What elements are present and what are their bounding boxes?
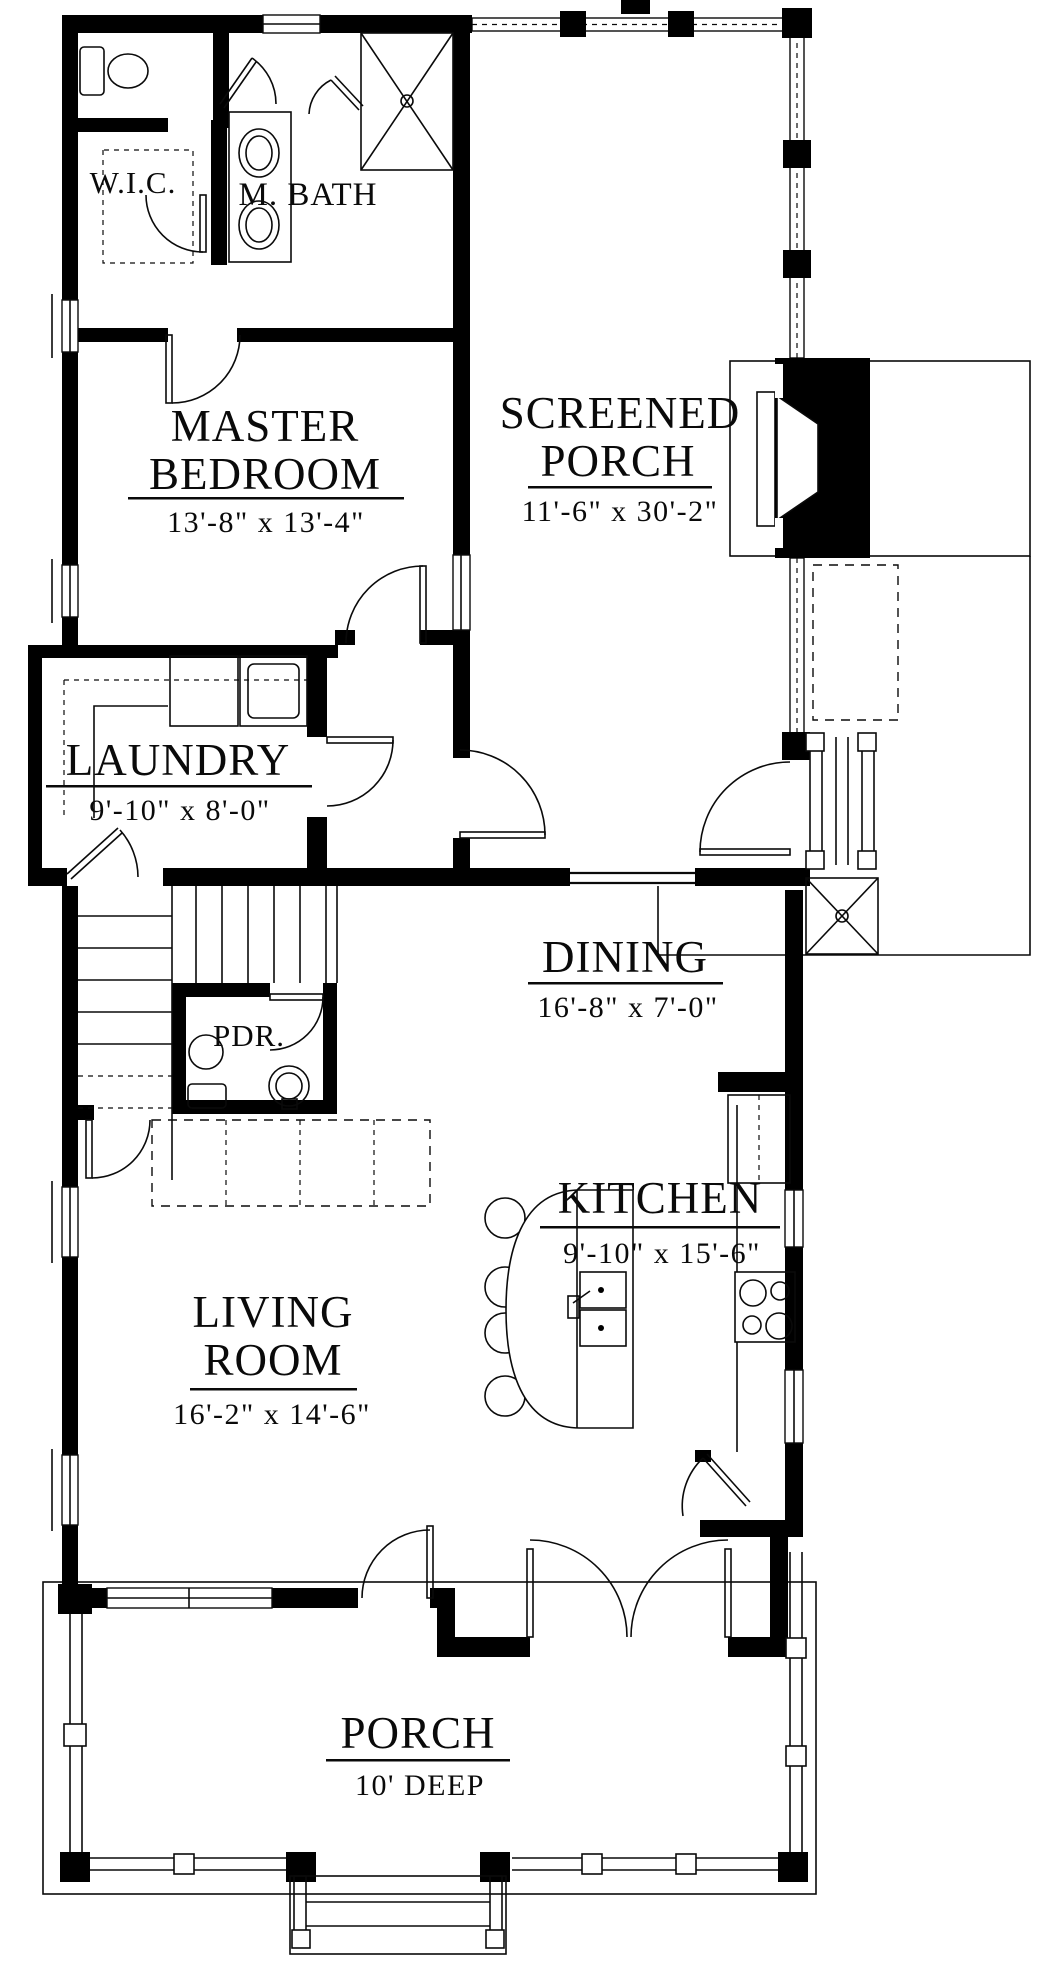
- screen-post: [783, 250, 811, 278]
- shower-fixture: [361, 33, 453, 170]
- wic-door: [146, 195, 206, 252]
- window: [785, 1190, 803, 1247]
- laundry-door: [67, 828, 138, 879]
- room-dimensions: 9'-10" x 8'-0": [89, 794, 270, 827]
- front-steps: [290, 1876, 506, 1954]
- room-dimensions: 10' DEEP: [355, 1769, 485, 1802]
- suite-entry-door: [166, 335, 240, 403]
- pantry-door: [682, 1454, 750, 1516]
- rail-post: [64, 1724, 86, 1746]
- fireplace: [757, 358, 870, 558]
- kitchen-island: [506, 1190, 633, 1428]
- window: [52, 1449, 78, 1531]
- label-powder-room: PDR.: [213, 1018, 285, 1053]
- room-dimensions: 11'-6" x 30'-2": [522, 495, 719, 528]
- hearth: [757, 392, 775, 526]
- room-name: SCREENED: [500, 388, 741, 438]
- label-master-bedroom: MASTER BEDROOM 13'-8" x 13'-4": [128, 401, 404, 539]
- room-name: PDR.: [213, 1018, 285, 1053]
- room-name: BEDROOM: [149, 449, 381, 499]
- room-name: ROOM: [203, 1335, 342, 1385]
- french-doors: [527, 1540, 731, 1637]
- screen-post: [783, 140, 811, 168]
- bedroom-hall-door: [346, 566, 426, 643]
- landing-pad: [806, 878, 878, 954]
- hall-dining-door: [460, 750, 545, 838]
- window: [107, 1588, 272, 1608]
- room-dimensions: 16'-2" x 14'-6": [173, 1398, 371, 1431]
- label-front-porch: PORCH 10' DEEP: [326, 1708, 510, 1802]
- room-name: M. BATH: [238, 177, 377, 213]
- label-kitchen: KITCHEN 9'-10" x 15'-6": [540, 1173, 780, 1270]
- room-labels: W.I.C. M. BATH MASTER BEDROOM 13'-8" x 1…: [46, 165, 780, 1802]
- front-door: [358, 1526, 433, 1608]
- room-name: MASTER: [171, 401, 360, 451]
- window: [785, 1370, 803, 1443]
- shower-door: [309, 76, 363, 114]
- window: [453, 555, 470, 630]
- laundry-hall-door: [327, 737, 393, 806]
- screen-porch-door: [700, 762, 790, 855]
- porch-column: [58, 1584, 92, 1614]
- rail-post: [582, 1854, 602, 1874]
- label-screened-porch: SCREENED PORCH 11'-6" x 30'-2": [500, 388, 741, 528]
- room-dimensions: 16'-8" x 7'-0": [537, 991, 718, 1024]
- label-master-bath: M. BATH: [238, 177, 377, 213]
- rail-post: [786, 1638, 806, 1658]
- label-dining: DINING 16'-8" x 7'-0": [528, 932, 723, 1024]
- screen-post: [668, 11, 694, 37]
- screen-walls: [472, 0, 812, 760]
- floor-plan-page: W.I.C. M. BATH MASTER BEDROOM 13'-8" x 1…: [0, 0, 1052, 1978]
- window: [52, 1181, 78, 1263]
- master-suite-fixtures: [80, 33, 453, 263]
- room-name: PORCH: [340, 1708, 495, 1758]
- exterior-walls: [28, 15, 803, 1657]
- kitchen-fixtures: [485, 1095, 795, 1452]
- understair-closet-door: [86, 1120, 150, 1178]
- room-dimensions: 9'-10" x 15'-6": [563, 1237, 761, 1270]
- porch-column: [778, 1852, 808, 1882]
- room-name: PORCH: [540, 436, 695, 486]
- label-living-room: LIVING ROOM 16'-2" x 14'-6": [173, 1287, 371, 1431]
- window: [52, 559, 78, 623]
- roof-beam-tick: [621, 0, 650, 14]
- label-laundry: LAUNDRY 9'-10" x 8'-0": [46, 735, 312, 827]
- porch-column: [60, 1852, 90, 1882]
- room-name: W.I.C.: [90, 165, 177, 200]
- room-name: LIVING: [193, 1287, 354, 1337]
- stair-above-dashed: [152, 1120, 430, 1206]
- label-wic: W.I.C.: [90, 165, 177, 200]
- room-name: DINING: [542, 932, 708, 982]
- room-name: KITCHEN: [558, 1173, 762, 1223]
- optional-pad-dashed: [813, 565, 898, 720]
- rail-post: [786, 1746, 806, 1766]
- toilet-fixture: [80, 47, 148, 95]
- rail-post: [174, 1854, 194, 1874]
- window: [263, 15, 320, 33]
- screen-corner-post: [782, 8, 812, 38]
- rail-post: [676, 1854, 696, 1874]
- window: [52, 294, 78, 358]
- floor-plan-svg: W.I.C. M. BATH MASTER BEDROOM 13'-8" x 1…: [0, 0, 1052, 1978]
- room-name: LAUNDRY: [66, 735, 291, 785]
- exterior-steps: [806, 733, 878, 954]
- room-dimensions: 13'-8" x 13'-4": [167, 506, 365, 539]
- washer: [170, 656, 238, 726]
- screen-post: [560, 11, 586, 37]
